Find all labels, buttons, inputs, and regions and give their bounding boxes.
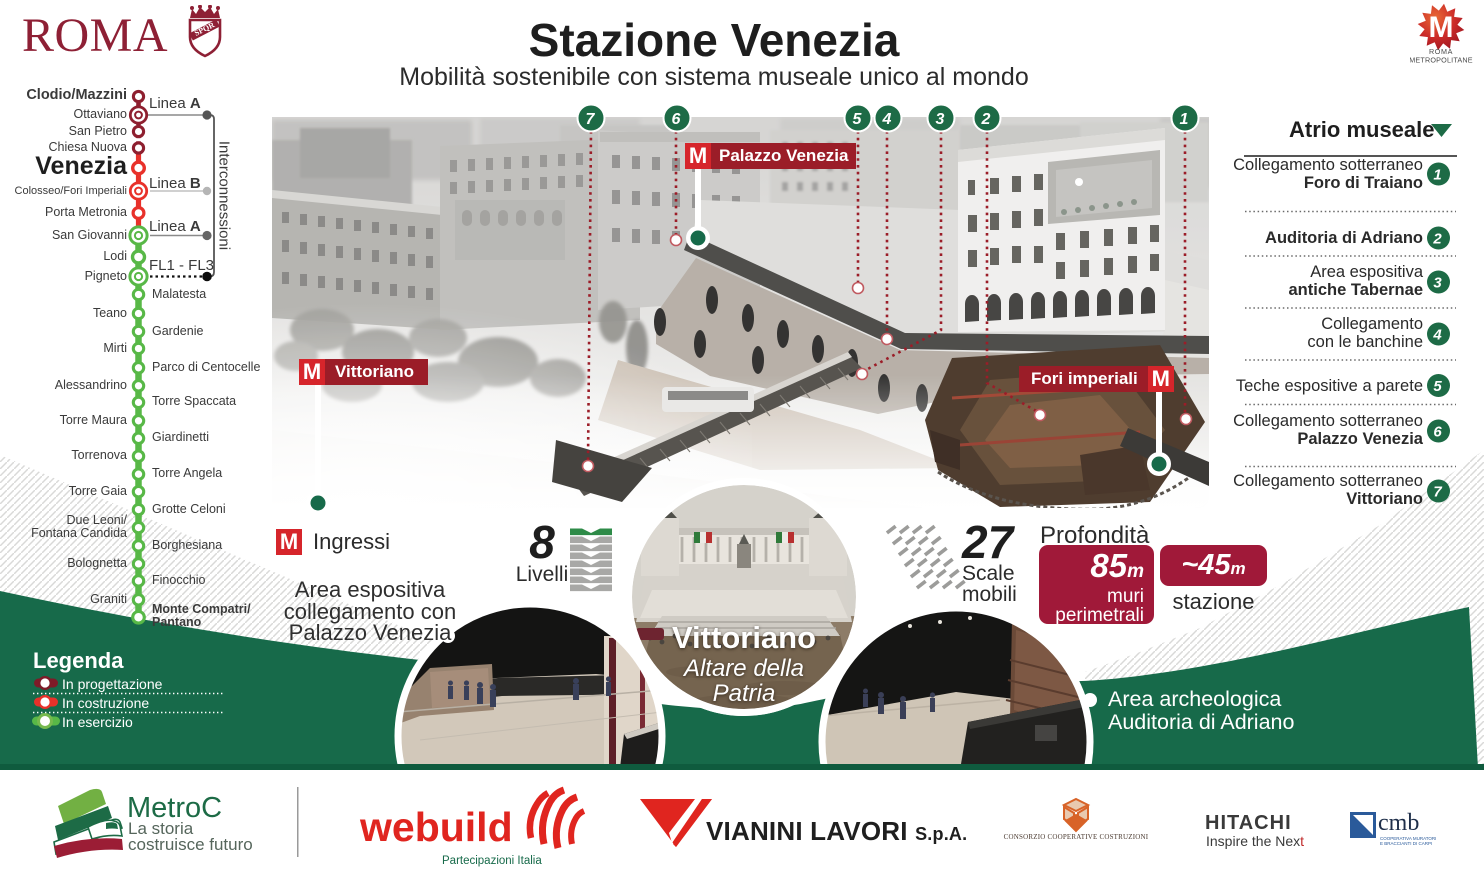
svg-text:3: 3 xyxy=(1433,275,1442,292)
svg-text:5: 5 xyxy=(853,111,863,128)
svg-text:4: 4 xyxy=(882,111,892,128)
svg-text:5: 5 xyxy=(1433,378,1442,395)
svg-text:2: 2 xyxy=(981,111,991,128)
svg-text:6: 6 xyxy=(1433,424,1442,441)
svg-text:7: 7 xyxy=(1433,484,1442,501)
svg-text:6: 6 xyxy=(672,111,681,128)
svg-text:7: 7 xyxy=(586,111,596,128)
svg-text:1: 1 xyxy=(1180,111,1189,128)
svg-text:2: 2 xyxy=(1432,231,1442,248)
svg-text:1: 1 xyxy=(1433,167,1441,184)
svg-text:M: M xyxy=(1429,11,1454,44)
svg-text:4: 4 xyxy=(1432,327,1442,344)
svg-text:METROPOLITANE: METROPOLITANE xyxy=(1410,56,1473,65)
svg-text:3: 3 xyxy=(936,111,945,128)
